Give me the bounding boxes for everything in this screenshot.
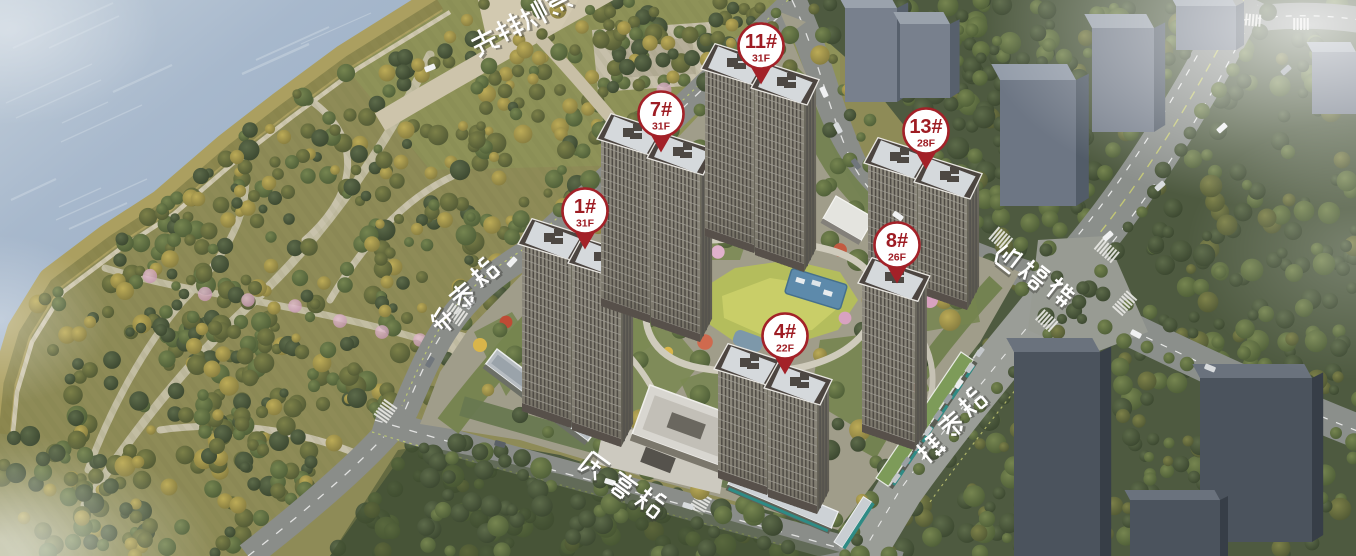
svg-text:22F: 22F xyxy=(776,343,795,355)
svg-text:31F: 31F xyxy=(652,121,671,133)
svg-text:8#: 8# xyxy=(886,230,908,252)
svg-text:7#: 7# xyxy=(650,99,672,121)
svg-text:13#: 13# xyxy=(909,116,942,138)
svg-text:28F: 28F xyxy=(917,138,936,150)
svg-text:1#: 1# xyxy=(574,196,596,218)
svg-text:31F: 31F xyxy=(752,53,771,65)
svg-text:11#: 11# xyxy=(745,31,777,53)
svg-text:31F: 31F xyxy=(576,218,595,230)
svg-text:26F: 26F xyxy=(888,252,907,264)
svg-text:4#: 4# xyxy=(774,321,796,343)
